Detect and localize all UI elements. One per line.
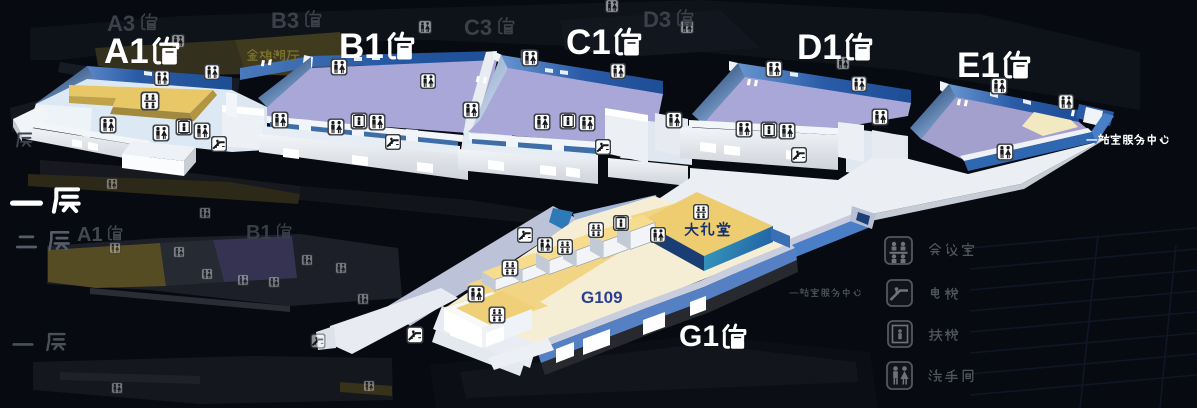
svg-text:B1: B1 bbox=[246, 222, 272, 244]
svg-text:C3: C3 bbox=[464, 15, 492, 40]
svg-text:D3: D3 bbox=[643, 7, 671, 32]
svg-text:E1: E1 bbox=[957, 46, 1000, 85]
svg-text:A1: A1 bbox=[104, 32, 149, 71]
svg-text:C1: C1 bbox=[566, 23, 611, 62]
svg-text:A3: A3 bbox=[107, 11, 135, 36]
svg-text:A1: A1 bbox=[77, 224, 103, 246]
svg-text:G1: G1 bbox=[679, 320, 719, 353]
svg-text:G109: G109 bbox=[581, 288, 623, 307]
svg-text:B1: B1 bbox=[339, 27, 384, 66]
svg-text:B3: B3 bbox=[271, 8, 299, 33]
svg-text:D1: D1 bbox=[797, 28, 842, 67]
